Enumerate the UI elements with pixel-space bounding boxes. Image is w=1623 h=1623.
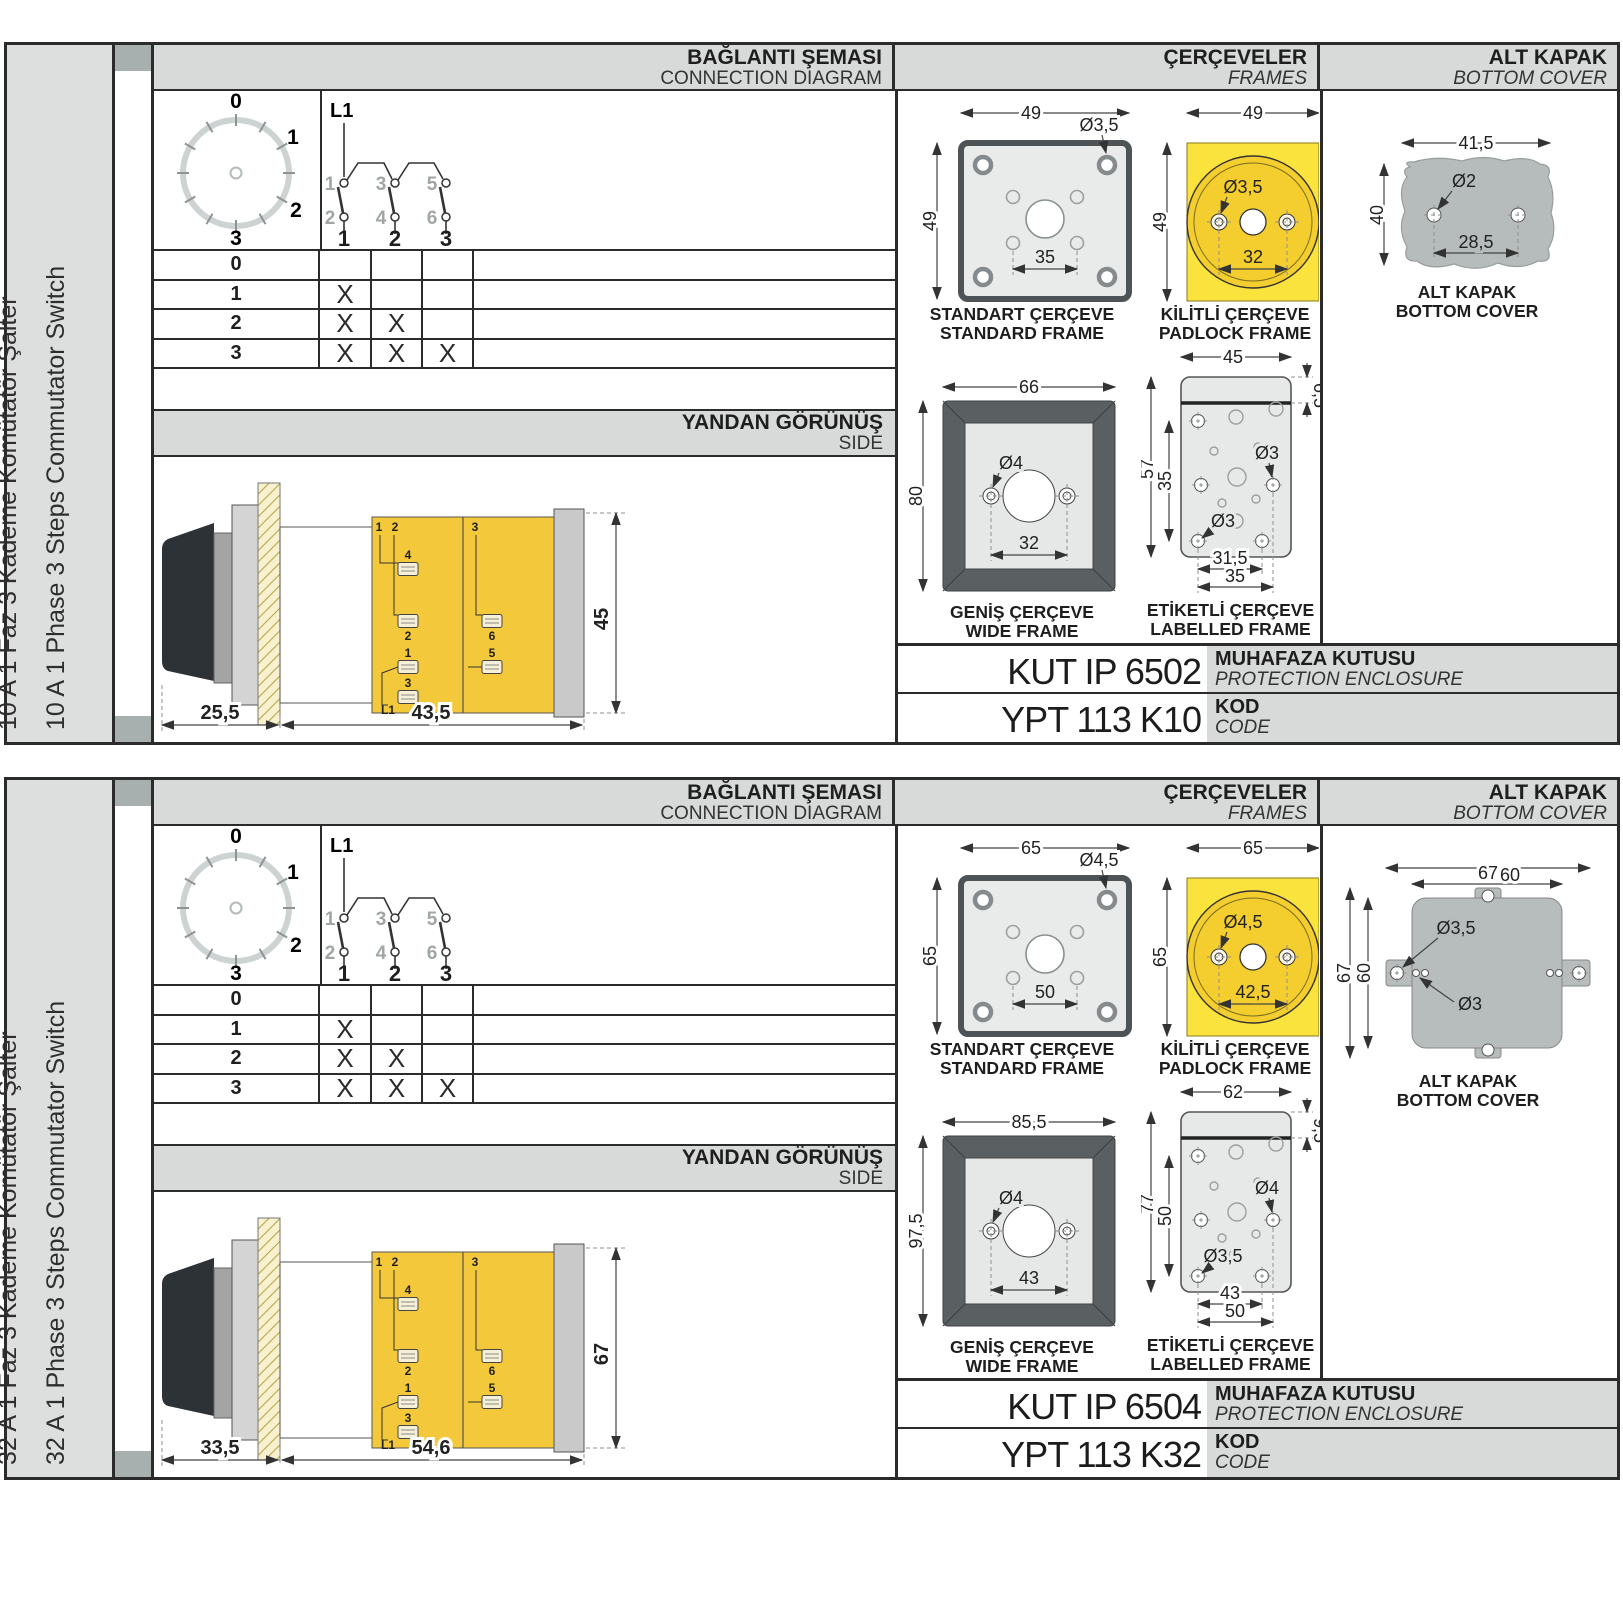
- padlock-frame-drawing: 65 65 Ø4,5 42,5: [1151, 832, 1319, 1038]
- dim-hole-left: Ø3: [1211, 511, 1235, 531]
- dim-hole-left: Ø3,5: [1203, 1246, 1242, 1266]
- dim-pitch: 50: [1035, 982, 1055, 1002]
- dim-body: 54,6: [412, 1437, 451, 1459]
- header-frames-tr: ÇERÇEVELER: [895, 782, 1307, 804]
- dim-strip: 9,5: [1310, 1118, 1320, 1143]
- enclosure-code: KUT IP 6504: [895, 1381, 1207, 1427]
- padlock-frame-drawing: 49 49 Ø3,5 32: [1151, 97, 1319, 303]
- bottom-cover-drawing: 41,5 40 Ø2 28,5: [1342, 131, 1592, 281]
- gutter-square-top: [115, 45, 151, 71]
- dim-height: 80: [906, 486, 926, 506]
- header-connection: BAĞLANTI ŞEMASI CONNECTION DIAGRAM: [154, 45, 895, 89]
- handle-spacer: [214, 1268, 232, 1418]
- dim-pitch: 35: [1035, 247, 1055, 267]
- svg-text:1: 1: [325, 909, 336, 930]
- dim-height: 65: [920, 946, 940, 966]
- svg-text:6: 6: [427, 943, 438, 964]
- table-row: 3 X X X: [154, 340, 895, 370]
- dim-width: 45: [1223, 347, 1243, 367]
- svg-text:5: 5: [489, 646, 496, 660]
- svg-text:5: 5: [427, 174, 438, 195]
- side-view-header: YANDAN GÖRÜNÜŞ SIDE: [154, 409, 895, 457]
- bottom-cover-caption: ALT KAPAK BOTTOM COVER: [1342, 283, 1592, 321]
- svg-text:3: 3: [440, 961, 452, 982]
- dim-height: 49: [920, 211, 940, 231]
- dial-pos-3: 3: [230, 227, 242, 247]
- mark-cell: [423, 1045, 474, 1073]
- svg-text:2: 2: [405, 1364, 412, 1378]
- switch-handle: [162, 523, 214, 681]
- product-section-10a: 10 A 1 Faz 3 Kademe Komütatör Şalter 10 …: [4, 42, 1620, 745]
- dim-hole2: Ø3: [1458, 994, 1482, 1014]
- svg-text:5: 5: [489, 1381, 496, 1395]
- mark-cell: [372, 986, 423, 1014]
- mark-cell: [423, 310, 474, 338]
- side-view-title-tr: YANDAN GÖRÜNÜŞ: [154, 1147, 883, 1169]
- wide-frame-drawing: Ø4 32 66 80: [899, 379, 1145, 601]
- svg-text:2: 2: [325, 943, 336, 964]
- connection-schematic: L1: [322, 826, 893, 982]
- figure-standard-frame: 49 Ø3,5 49 35 STANDART ÇERÇEVE STANDARD …: [899, 97, 1145, 343]
- step-table: 0 1 X 2 X X 3: [154, 251, 895, 369]
- dim-hole: Ø4: [999, 1188, 1023, 1208]
- svg-text:6: 6: [427, 208, 438, 229]
- dim-inner-height: 50: [1155, 1206, 1175, 1226]
- dial-pos-2: 2: [290, 199, 302, 222]
- header-frames: ÇERÇEVELER FRAMES: [895, 780, 1320, 824]
- gutter-square-top: [115, 780, 151, 806]
- svg-text:3: 3: [440, 226, 452, 247]
- header-connection: BAĞLANTI ŞEMASI CONNECTION DIAGRAM: [154, 780, 895, 824]
- header-row: BAĞLANTI ŞEMASI CONNECTION DIAGRAM ÇERÇE…: [154, 780, 1617, 826]
- dim-height: 45: [591, 608, 613, 630]
- dim-height: 97,5: [906, 1213, 926, 1248]
- svg-text:5: 5: [427, 909, 438, 930]
- sidebar-product-titles: 32 A 1 Faz 3 Kademe Komütatör Şalter 32 …: [7, 780, 115, 1477]
- svg-text:3: 3: [376, 174, 387, 195]
- header-frames-en: FRAMES: [895, 804, 1307, 824]
- mark-cell: X: [372, 1045, 423, 1073]
- dial-pos-0: 0: [230, 91, 242, 113]
- figure-bottom-cover: 41,5 40 Ø2 28,5 ALT KAPAK BOTTOM COVER: [1342, 131, 1592, 321]
- dim-width: 41,5: [1458, 133, 1493, 153]
- codes-block: KUT IP 6502 MUHAFAZA KUTUSU PROTECTION E…: [895, 643, 1617, 742]
- table-row: 2 X X: [154, 310, 895, 340]
- product-title-tr: 10 A 1 Faz 3 Kademe Komütatör Şalter: [0, 296, 23, 730]
- padlock-frame-caption: KİLİTLİ ÇERÇEVE PADLOCK FRAME: [1151, 305, 1319, 343]
- svg-text:2: 2: [389, 226, 401, 247]
- svg-text:1: 1: [338, 226, 350, 247]
- diagram-row: 0 1 2 3 L1: [154, 826, 895, 986]
- dim-pitch: 28,5: [1458, 232, 1493, 252]
- dim-pitch1: 43: [1220, 1283, 1240, 1303]
- dim-width: 85,5: [1011, 1114, 1046, 1132]
- svg-text:4: 4: [376, 943, 387, 964]
- dial-cell: 0 1 2 3: [154, 826, 322, 984]
- panel-hatch: [258, 1218, 280, 1460]
- dim-width: 49: [1243, 103, 1263, 123]
- step-label: 0: [154, 251, 320, 279]
- mark-cell: [320, 251, 372, 279]
- figure-labelled-frame: 45 6,5 57 35 Ø3 Ø3 31,5: [1141, 347, 1320, 639]
- svg-text:3: 3: [472, 1255, 479, 1269]
- mark-cell: X: [372, 1075, 423, 1103]
- end-plate: [554, 1244, 584, 1452]
- main-area: BAĞLANTI ŞEMASI CONNECTION DIAGRAM ÇERÇE…: [154, 780, 1617, 1477]
- svg-text:6: 6: [489, 1364, 496, 1378]
- output-numbers: 1 2 3: [338, 226, 452, 247]
- enclosure-row: KUT IP 6502 MUHAFAZA KUTUSU PROTECTION E…: [895, 643, 1617, 692]
- svg-text:6: 6: [489, 629, 496, 643]
- code-row: YPT 113 K32 KOD CODE: [895, 1427, 1617, 1477]
- front-plate: [232, 505, 258, 705]
- mark-cell: X: [320, 1075, 372, 1103]
- frames-column: 65 Ø4,5 65 50 STANDART ÇERÇEVE STANDARD …: [895, 826, 1323, 1379]
- step-label: 1: [154, 1016, 320, 1044]
- dim-pitch2: 35: [1225, 566, 1245, 586]
- diagram-row: 0 1 2 3 L1: [154, 91, 895, 251]
- header-cover-en: BOTTOM COVER: [1320, 69, 1607, 89]
- mark-cell: X: [320, 1016, 372, 1044]
- dim-height: 49: [1151, 212, 1170, 232]
- connection-column: 0 1 2 3 L1: [154, 91, 898, 742]
- svg-text:3: 3: [405, 1411, 412, 1425]
- dial-pos-0: 0: [230, 826, 242, 848]
- phase-label: L1: [330, 835, 353, 857]
- dim-hole: Ø3,5: [1223, 177, 1262, 197]
- handle-spacer: [214, 533, 232, 683]
- side-view-drawing: 1 2 3 4 2 6 1 5 3 L1 25,5: [158, 469, 688, 739]
- dial-ticks: [177, 849, 295, 967]
- main-area: BAĞLANTI ŞEMASI CONNECTION DIAGRAM ÇERÇE…: [154, 45, 1617, 742]
- mark-cell: X: [423, 340, 474, 368]
- svg-text:4: 4: [376, 208, 387, 229]
- shaft-housing: [280, 527, 372, 703]
- mark-cell: X: [320, 310, 372, 338]
- product-title-en: 10 A 1 Phase 3 Steps Commutator Switch: [42, 266, 71, 730]
- product-title-tr: 32 A 1 Faz 3 Kademe Komütatör Şalter: [0, 1031, 23, 1465]
- mark-cell: X: [320, 281, 372, 309]
- dim-pitch: 32: [1243, 247, 1263, 267]
- header-cover-tr: ALT KAPAK: [1320, 782, 1607, 804]
- code-row: YPT 113 K10 KOD CODE: [895, 692, 1617, 742]
- front-plate: [232, 1240, 258, 1440]
- figure-labelled-frame: 62 9,5 77 50 Ø4 Ø3,5 43: [1141, 1082, 1320, 1374]
- dim-hole-right: Ø3: [1255, 443, 1279, 463]
- table-row: 1 X: [154, 281, 895, 311]
- svg-text:3: 3: [405, 676, 412, 690]
- svg-text:1: 1: [376, 520, 383, 534]
- dim-hole: Ø2: [1452, 171, 1476, 191]
- dim-pitch: 42,5: [1235, 982, 1270, 1002]
- switch-dial-drawing: 0 1 2 3: [154, 91, 320, 247]
- svg-text:2: 2: [392, 1255, 399, 1269]
- mark-cell: X: [372, 310, 423, 338]
- phase-label: L1: [330, 100, 353, 122]
- svg-text:L1: L1: [381, 703, 395, 717]
- svg-text:4: 4: [405, 1283, 412, 1297]
- end-plate: [554, 509, 584, 717]
- step-label: 3: [154, 1075, 320, 1103]
- product-code: YPT 113 K10: [895, 694, 1207, 742]
- svg-text:1: 1: [405, 1381, 412, 1395]
- table-row: 0: [154, 986, 895, 1016]
- header-connection-tr: BAĞLANTI ŞEMASI: [154, 47, 882, 69]
- figure-padlock-frame: 49 49 Ø3,5 32 KİLİTLİ ÇERÇEVE PADLOCK FR…: [1151, 97, 1319, 343]
- enclosure-row: KUT IP 6504 MUHAFAZA KUTUSU PROTECTION E…: [895, 1378, 1617, 1427]
- connection-column: 0 1 2 3 L1: [154, 826, 898, 1477]
- schematic-cell: L1: [322, 826, 895, 984]
- header-cover-tr: ALT KAPAK: [1320, 47, 1607, 69]
- standard-frame-drawing: 49 Ø3,5 49 35: [899, 97, 1145, 303]
- code-label: KOD CODE: [1207, 694, 1617, 742]
- shaft-housing: [280, 1262, 372, 1438]
- gutter-column: [115, 780, 154, 1477]
- header-connection-en: CONNECTION DIAGRAM: [154, 804, 882, 824]
- cover-column: 41,5 40 Ø2 28,5 ALT KAPAK BOTTOM COVER: [1320, 91, 1617, 644]
- table-row: 3 X X X: [154, 1075, 895, 1105]
- gutter-square-bottom: [115, 716, 151, 742]
- svg-text:3: 3: [376, 909, 387, 930]
- side-view-title-en: SIDE: [154, 1169, 883, 1189]
- dim-pitch2: 50: [1225, 1301, 1245, 1321]
- figure-wide-frame: Ø4 43 85,5 97,5 GENİŞ ÇERÇEVE WIDE FRAME: [899, 1114, 1145, 1376]
- product-section-32a: 32 A 1 Faz 3 Kademe Komütatör Şalter 32 …: [4, 777, 1620, 1480]
- dial-cell: 0 1 2 3: [154, 91, 322, 249]
- code-label: KOD CODE: [1207, 1429, 1617, 1477]
- figure-standard-frame: 65 Ø4,5 65 50 STANDART ÇERÇEVE STANDARD …: [899, 832, 1145, 1078]
- svg-text:1: 1: [376, 1255, 383, 1269]
- dim-inner-height: 35: [1155, 471, 1175, 491]
- output-numbers: 1 2 3: [338, 961, 452, 982]
- switch-handle: [162, 1258, 214, 1416]
- cover-column: 67 60 67 60 Ø3,5 Ø3 ALT KAPAK BOTTOM COV…: [1320, 826, 1617, 1379]
- mark-cell: [320, 986, 372, 1014]
- dim-hole: Ø4,5: [1223, 912, 1262, 932]
- mark-cell: [423, 986, 474, 1014]
- codes-block: KUT IP 6504 MUHAFAZA KUTUSU PROTECTION E…: [895, 1378, 1617, 1477]
- connection-schematic: L1: [322, 91, 893, 247]
- labelled-frame-caption: ETİKETLİ ÇERÇEVE LABELLED FRAME: [1141, 1336, 1320, 1374]
- labelled-frame-drawing: 62 9,5 77 50 Ø4 Ø3,5 43: [1141, 1082, 1320, 1334]
- wide-frame-caption: GENİŞ ÇERÇEVE WIDE FRAME: [899, 603, 1145, 641]
- wide-frame-drawing: Ø4 43 85,5 97,5: [899, 1114, 1145, 1336]
- step-label: 0: [154, 986, 320, 1014]
- dial-pos-1: 1: [287, 126, 299, 149]
- header-cover: ALT KAPAK BOTTOM COVER: [1320, 780, 1617, 824]
- mark-cell: X: [320, 1045, 372, 1073]
- svg-text:2: 2: [389, 961, 401, 982]
- wide-frame-caption: GENİŞ ÇERÇEVE WIDE FRAME: [899, 1338, 1145, 1376]
- dim-width: 66: [1019, 379, 1039, 397]
- side-view-title-tr: YANDAN GÖRÜNÜŞ: [154, 412, 883, 434]
- dim-hole: Ø4: [999, 453, 1023, 473]
- header-cover: ALT KAPAK BOTTOM COVER: [1320, 45, 1617, 89]
- dim-hole: Ø3,5: [1079, 115, 1118, 135]
- dim-pitch: 43: [1019, 1268, 1039, 1288]
- mark-cell: [372, 251, 423, 279]
- svg-text:2: 2: [325, 208, 336, 229]
- step-label: 2: [154, 1045, 320, 1073]
- mark-cell: [423, 1016, 474, 1044]
- header-frames-tr: ÇERÇEVELER: [895, 47, 1307, 69]
- dim-height: 67: [591, 1343, 613, 1365]
- labelled-frame-drawing: 45 6,5 57 35 Ø3 Ø3 31,5: [1141, 347, 1320, 599]
- switch-dial-drawing: 0 1 2 3: [154, 826, 320, 982]
- dim-hole: Ø4,5: [1079, 850, 1118, 870]
- mark-cell: X: [372, 340, 423, 368]
- svg-text:2: 2: [392, 520, 399, 534]
- figure-wide-frame: Ø4 32 66 80 GENİŞ ÇERÇEVE WIDE FRAME: [899, 379, 1145, 641]
- side-view-title-en: SIDE: [154, 434, 883, 454]
- mark-cell: X: [423, 1075, 474, 1103]
- dim-hole-right: Ø4: [1255, 1178, 1279, 1198]
- header-cover-en: BOTTOM COVER: [1320, 804, 1607, 824]
- bottom-cover-drawing: 67 60 67 60 Ø3,5 Ø3: [1336, 862, 1600, 1070]
- padlock-frame-caption: KİLİTLİ ÇERÇEVE PADLOCK FRAME: [1151, 1040, 1319, 1078]
- dim-width-inner: 60: [1500, 865, 1520, 885]
- standard-frame-caption: STANDART ÇERÇEVE STANDARD FRAME: [899, 1040, 1145, 1078]
- header-frames: ÇERÇEVELER FRAMES: [895, 45, 1320, 89]
- dial-ticks: [177, 114, 295, 232]
- dim-width: 62: [1223, 1082, 1243, 1102]
- svg-text:L1: L1: [381, 1438, 395, 1452]
- dim-pitch: 32: [1019, 533, 1039, 553]
- header-connection-tr: BAĞLANTI ŞEMASI: [154, 782, 882, 804]
- panel-hatch: [258, 483, 280, 725]
- svg-text:4: 4: [405, 548, 412, 562]
- dim-hole1: Ø3,5: [1436, 918, 1475, 938]
- step-table: 0 1 X 2 X X 3: [154, 986, 895, 1104]
- step-label: 2: [154, 310, 320, 338]
- svg-text:1: 1: [405, 646, 412, 660]
- enclosure-label: MUHAFAZA KUTUSU PROTECTION ENCLOSURE: [1207, 646, 1617, 692]
- svg-text:1: 1: [325, 174, 336, 195]
- frames-column: 49 Ø3,5 49 35 STANDART ÇERÇEVE STANDARD …: [895, 91, 1323, 644]
- dim-front: 33,5: [201, 1437, 240, 1459]
- gutter-square-bottom: [115, 1451, 151, 1477]
- dim-front: 25,5: [201, 702, 240, 724]
- enclosure-label: MUHAFAZA KUTUSU PROTECTION ENCLOSURE: [1207, 1381, 1617, 1427]
- product-title-en: 32 A 1 Phase 3 Steps Commutator Switch: [42, 1001, 71, 1465]
- step-label: 3: [154, 340, 320, 368]
- header-connection-en: CONNECTION DIAGRAM: [154, 69, 882, 89]
- table-row: 1 X: [154, 1016, 895, 1046]
- table-row: 2 X X: [154, 1045, 895, 1075]
- bottom-cover-caption: ALT KAPAK BOTTOM COVER: [1336, 1072, 1600, 1110]
- table-row: 0: [154, 251, 895, 281]
- dim-pitch1: 31,5: [1212, 548, 1247, 568]
- mark-cell: [423, 251, 474, 279]
- dim-height: 65: [1151, 947, 1170, 967]
- header-row: BAĞLANTI ŞEMASI CONNECTION DIAGRAM ÇERÇE…: [154, 45, 1617, 91]
- labelled-frame-caption: ETİKETLİ ÇERÇEVE LABELLED FRAME: [1141, 601, 1320, 639]
- side-view-drawing: 1 2 3 4 2 6 1 5 3 L1 33,5: [158, 1204, 688, 1474]
- dim-height-outer: 67: [1336, 963, 1354, 983]
- dial-pos-3: 3: [230, 962, 242, 982]
- dim-strip: 6,5: [1310, 383, 1320, 408]
- product-code: YPT 113 K32: [895, 1429, 1207, 1477]
- step-label: 1: [154, 281, 320, 309]
- figure-bottom-cover: 67 60 67 60 Ø3,5 Ø3 ALT KAPAK BOTTOM COV…: [1336, 862, 1600, 1110]
- gutter-column: [115, 45, 154, 742]
- standard-frame-drawing: 65 Ø4,5 65 50: [899, 832, 1145, 1038]
- dim-body: 43,5: [412, 702, 451, 724]
- dial-pos-2: 2: [290, 934, 302, 957]
- schematic-cell: L1: [322, 91, 895, 249]
- dim-width-outer: 67: [1478, 863, 1498, 883]
- mark-cell: [423, 281, 474, 309]
- svg-text:3: 3: [472, 520, 479, 534]
- enclosure-code: KUT IP 6502: [895, 646, 1207, 692]
- mark-cell: [372, 1016, 423, 1044]
- dim-height-inner: 60: [1354, 963, 1374, 983]
- side-view-header: YANDAN GÖRÜNÜŞ SIDE: [154, 1144, 895, 1192]
- svg-text:2: 2: [405, 629, 412, 643]
- mark-cell: [372, 281, 423, 309]
- sidebar-product-titles: 10 A 1 Faz 3 Kademe Komütatör Şalter 10 …: [7, 45, 115, 742]
- dim-height: 40: [1367, 205, 1387, 225]
- dim-width: 65: [1243, 838, 1263, 858]
- figure-padlock-frame: 65 65 Ø4,5 42,5 KİLİTLİ ÇERÇEVE PADLOCK …: [1151, 832, 1319, 1078]
- standard-frame-caption: STANDART ÇERÇEVE STANDARD FRAME: [899, 305, 1145, 343]
- mark-cell: X: [320, 340, 372, 368]
- svg-text:1: 1: [338, 961, 350, 982]
- header-frames-en: FRAMES: [895, 69, 1307, 89]
- dim-width: 49: [1021, 103, 1041, 123]
- dial-pos-1: 1: [287, 861, 299, 884]
- dim-width: 65: [1021, 838, 1041, 858]
